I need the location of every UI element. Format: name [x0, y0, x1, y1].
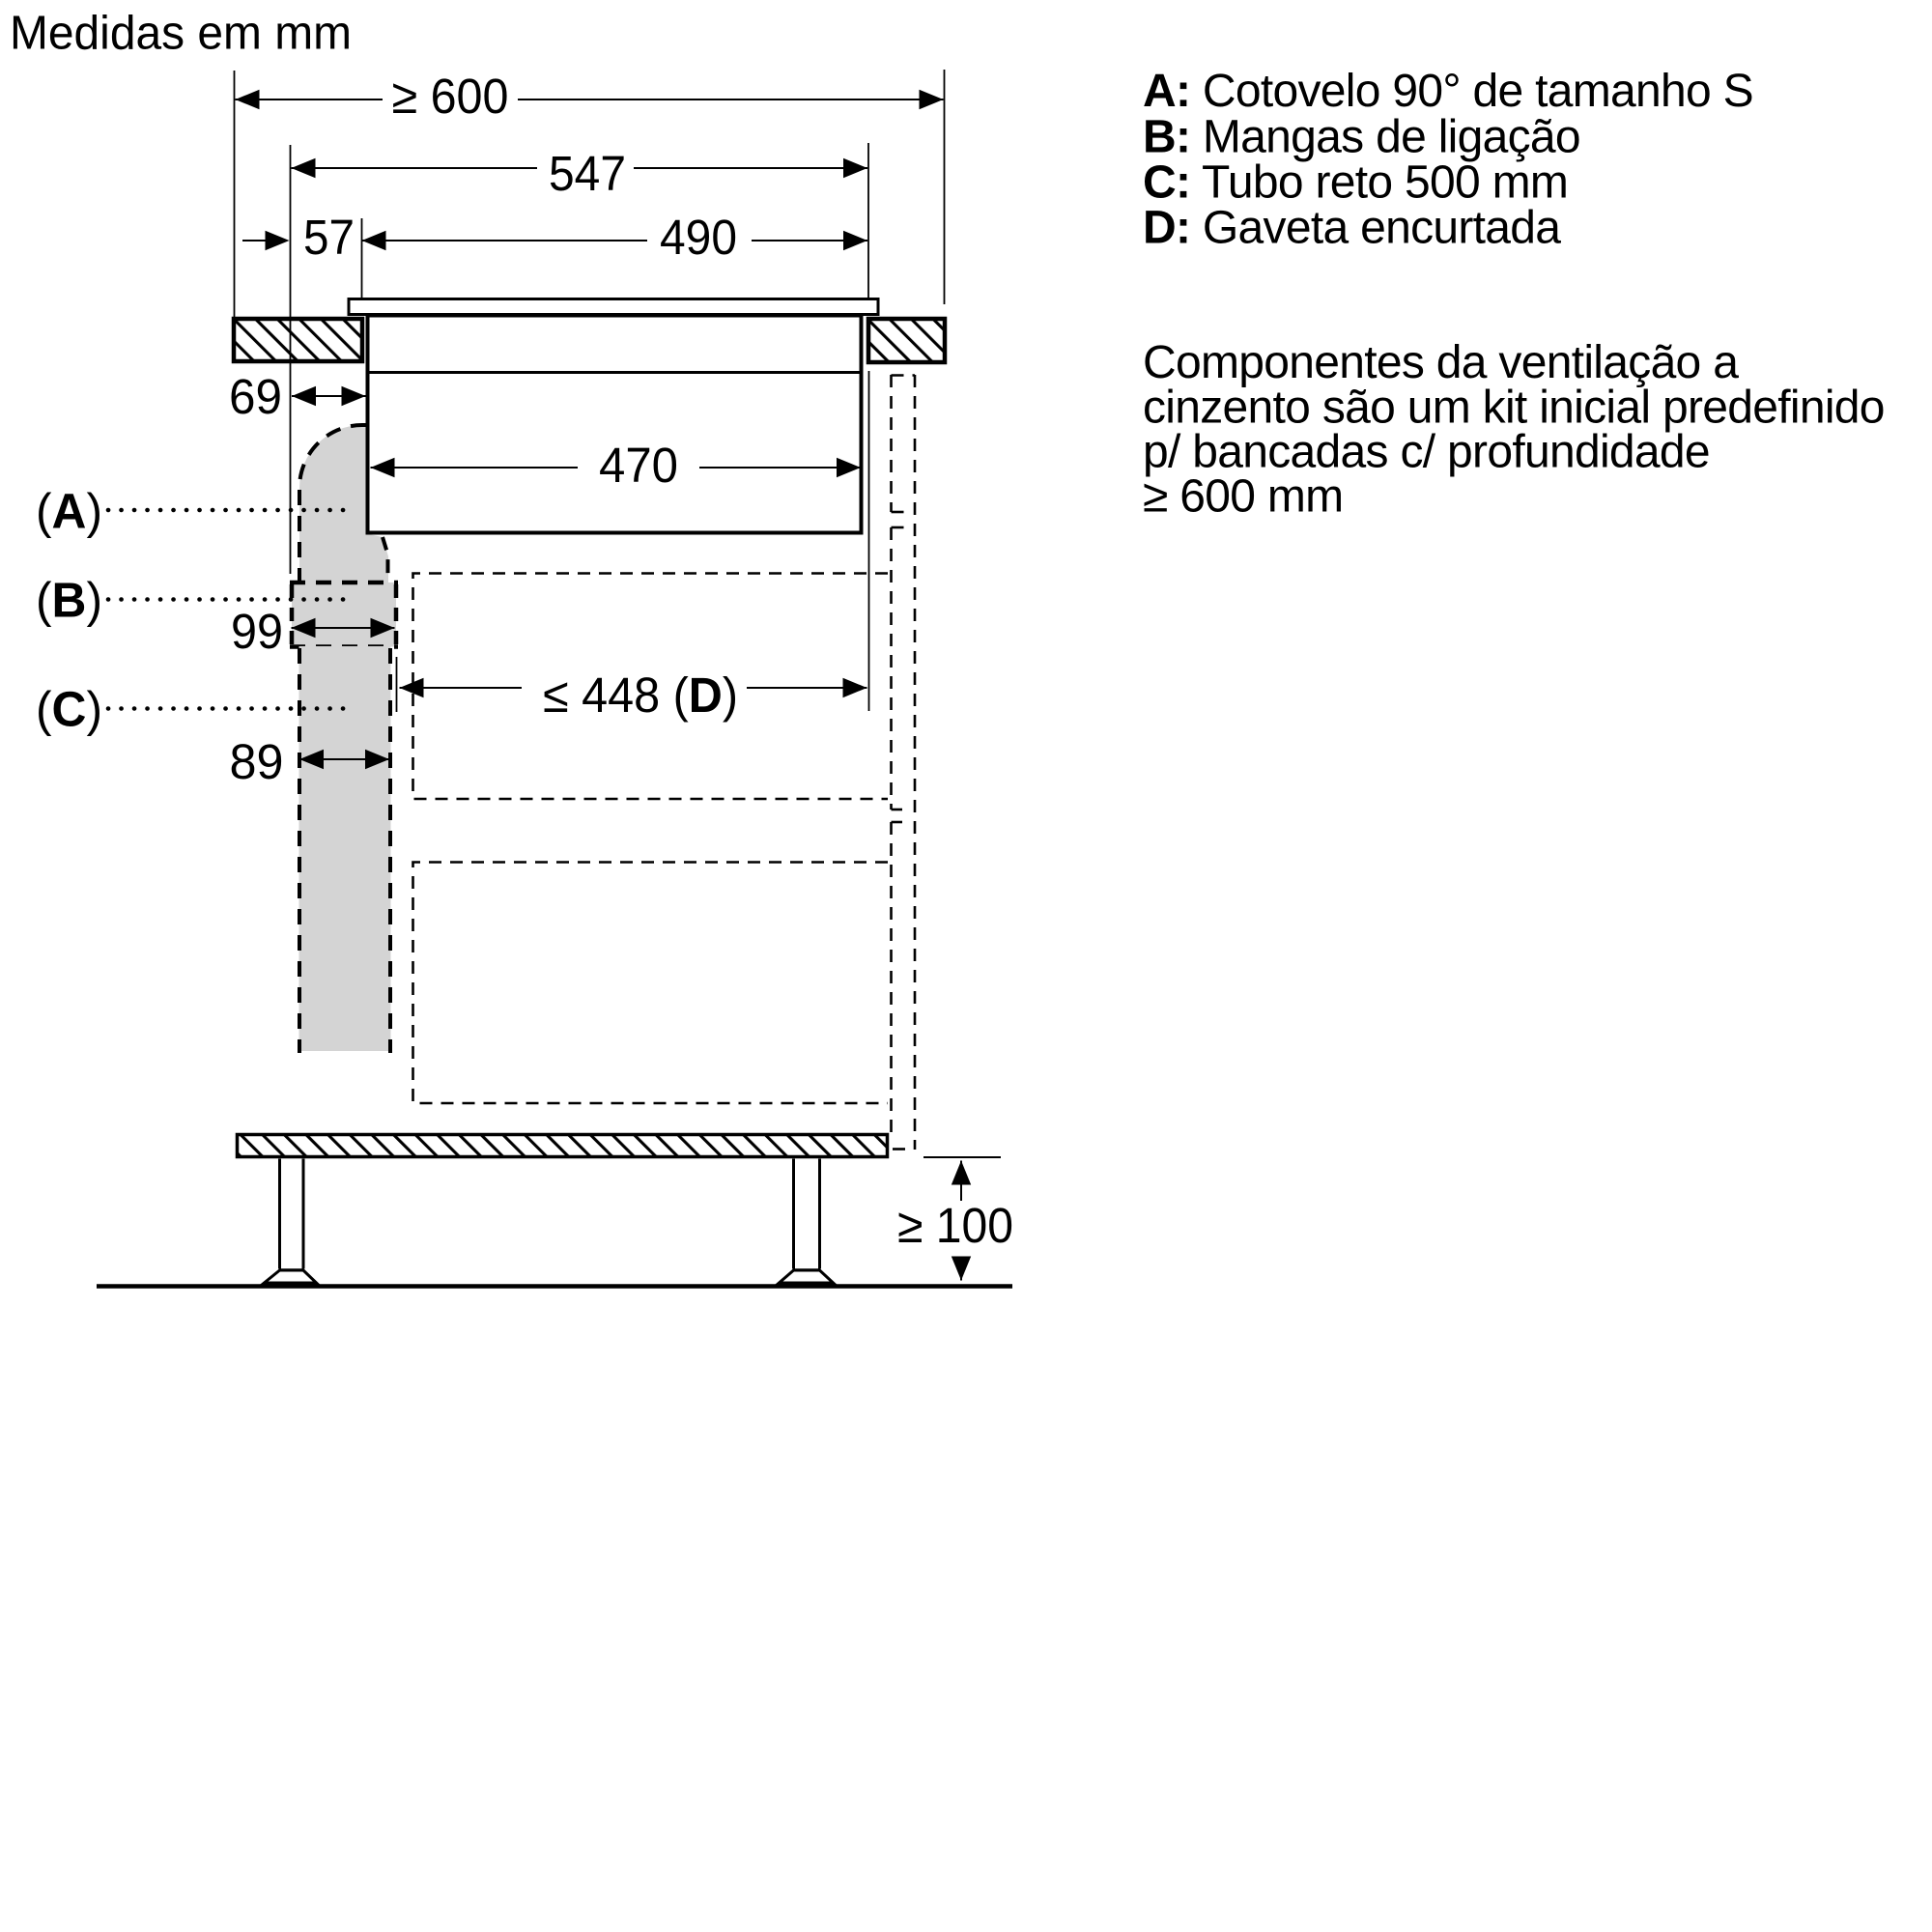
- svg-text:≤ 448 (D): ≤ 448 (D): [543, 668, 738, 723]
- svg-text:547: 547: [549, 146, 626, 201]
- svg-text:≥ 600: ≥ 600: [392, 69, 509, 124]
- svg-text:≥ 600 mm: ≥ 600 mm: [1143, 471, 1343, 523]
- svg-text:(A): (A): [36, 484, 102, 539]
- svg-text:69: 69: [229, 369, 282, 424]
- svg-text:B: Mangas de ligação: B: Mangas de ligação: [1143, 112, 1580, 163]
- svg-text:490: 490: [660, 210, 737, 265]
- svg-text:Medidas em mm: Medidas em mm: [10, 8, 352, 60]
- svg-text:57: 57: [303, 210, 355, 265]
- svg-text:D: Gaveta encurtada: D: Gaveta encurtada: [1143, 203, 1561, 254]
- svg-text:≥ 100: ≥ 100: [897, 1198, 1013, 1253]
- svg-text:(C): (C): [36, 682, 102, 737]
- svg-text:A: Cotovelo 90° de tamanho S: A: Cotovelo 90° de tamanho S: [1143, 66, 1753, 117]
- svg-text:Componentes da ventilação a: Componentes da ventilação a: [1143, 337, 1739, 388]
- svg-text:99: 99: [231, 604, 283, 659]
- svg-text:C: Tubo reto 500 mm: C: Tubo reto 500 mm: [1143, 157, 1568, 209]
- svg-text:89: 89: [230, 734, 284, 789]
- svg-text:470: 470: [599, 438, 678, 493]
- svg-text:(B): (B): [36, 573, 102, 628]
